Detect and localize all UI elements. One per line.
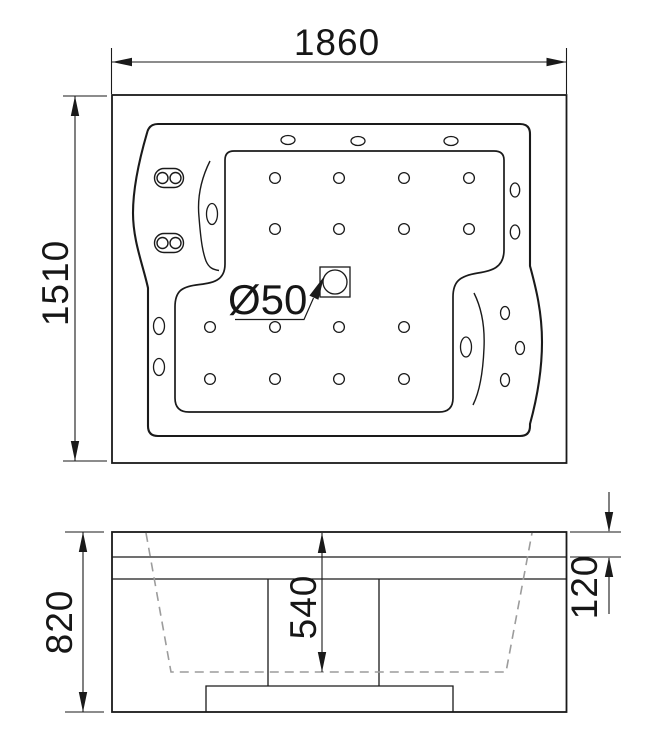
air-jet [501, 374, 510, 387]
overall-height-label: 820 [39, 590, 80, 655]
headrest-jet-housing [155, 169, 184, 188]
drawing-canvas: Ø50 1860 1510 [0, 0, 651, 754]
arrowhead-top [71, 96, 79, 116]
dim-basin-depth: 540 [283, 533, 326, 672]
air-jet [516, 342, 525, 355]
floor-jet [270, 173, 281, 184]
basin-outline [175, 151, 504, 412]
headrest-jet-nozzle [170, 238, 181, 249]
floor-jet [399, 173, 410, 184]
overall-depth-label: 1510 [35, 240, 76, 326]
floor-jet [464, 224, 475, 235]
floor-jet [270, 224, 281, 235]
arrowhead-bottom [79, 692, 87, 712]
arrowhead-bottom [318, 652, 326, 672]
headrest-jet-nozzle [157, 173, 168, 184]
floor-jet [399, 224, 410, 235]
floor-jet [399, 374, 410, 385]
air-jet [444, 137, 458, 146]
headrest-jet-nozzle [157, 238, 168, 249]
headrest-jet-nozzle [170, 173, 181, 184]
arrowhead-up [605, 557, 613, 577]
headrest-jet-housing [155, 234, 184, 253]
air-jet [154, 318, 165, 335]
drain-square [320, 267, 350, 297]
arrowhead-left [112, 58, 132, 66]
dim-rim-height: 120 [564, 492, 621, 619]
drain [320, 267, 350, 297]
floor-jet [334, 322, 345, 333]
air-jet [154, 359, 165, 376]
floor-jet [464, 173, 475, 184]
seat-contour-right [473, 293, 484, 405]
air-jet [351, 137, 365, 146]
rim-outline [133, 124, 542, 436]
floor-jet [205, 322, 216, 333]
air-jet [501, 307, 510, 320]
floor-jet [270, 322, 281, 333]
dim-overall-depth: 1510 [35, 96, 107, 461]
drain-callout: Ø50 [228, 276, 324, 323]
arrowhead-bottom [71, 441, 79, 461]
arrowhead-right [547, 58, 567, 66]
air-jet [461, 337, 472, 357]
dim-overall-height: 820 [39, 532, 104, 712]
side-view [112, 532, 567, 712]
side-outline [112, 532, 567, 712]
air-jet [510, 183, 519, 197]
technical-drawing: Ø50 1860 1510 [0, 0, 651, 754]
floor-jet [334, 173, 345, 184]
basin-depth-label: 540 [283, 575, 324, 640]
floor-jet [334, 224, 345, 235]
floor-jet [399, 322, 410, 333]
basin-hidden-profile [146, 533, 532, 672]
pedestal-base [206, 686, 453, 712]
air-jet [207, 204, 218, 225]
rim-height-label: 120 [564, 555, 605, 620]
arrowhead-top [318, 533, 326, 553]
drain-circle [323, 270, 347, 294]
top-view: Ø50 [112, 95, 567, 463]
floor-jet [334, 374, 345, 385]
air-jet [510, 225, 519, 239]
air-jet [281, 136, 295, 145]
floor-jet [270, 374, 281, 385]
leader-arrowhead [309, 277, 324, 300]
headrest-jets [155, 169, 184, 253]
overall-width-label: 1860 [294, 22, 380, 63]
seat-contour-left [198, 161, 219, 271]
drain-diameter-label: Ø50 [228, 276, 307, 323]
dim-overall-width: 1860 [112, 22, 567, 94]
floor-jet [205, 374, 216, 385]
arrowhead-top [79, 532, 87, 552]
arrowhead-down [605, 512, 613, 532]
dimensions: 1860 1510 820 540 [35, 22, 621, 712]
